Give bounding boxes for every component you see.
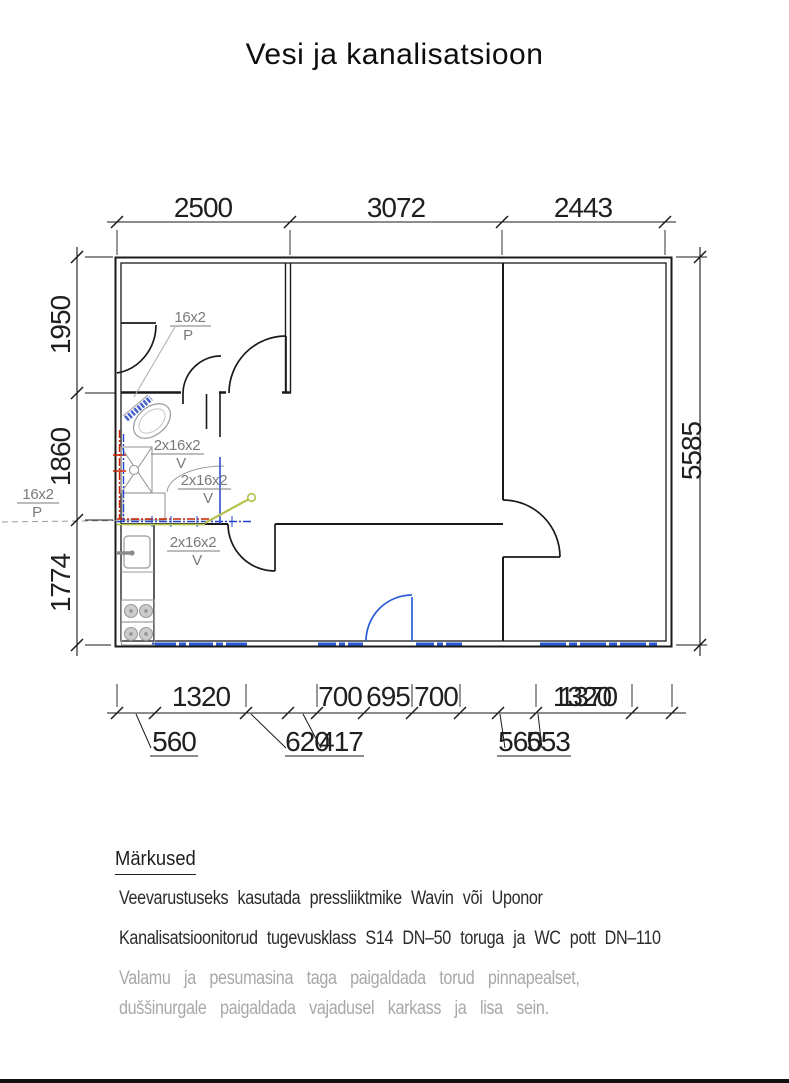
dim-bottom-r2-2: 417 xyxy=(319,726,363,757)
pipe-label-v1-sub: V xyxy=(176,455,186,472)
dim-left-0: 1950 xyxy=(45,295,76,354)
dim-top-1: 3072 xyxy=(367,192,426,223)
note-line-3: Valamu ja pesumasina taga paigaldada tor… xyxy=(119,968,580,990)
pipe-label-v3-sub: V xyxy=(192,552,202,569)
stove xyxy=(122,600,155,645)
dim-left: 1950 1860 1774 xyxy=(45,247,115,656)
kitchen-counter xyxy=(121,524,154,641)
dim-top-0: 2500 xyxy=(174,192,233,223)
pipe-label-v1-text: 2x16x2 xyxy=(154,437,201,454)
shower xyxy=(121,447,152,493)
door-top-left-room xyxy=(117,323,156,373)
pipe-label-v2-sub: V xyxy=(203,490,213,507)
door-hall-large xyxy=(229,336,286,393)
floor-plan-svg: 16x2 P 16x2 P 2x16x2 V 2x16x2 V xyxy=(0,0,789,1083)
dim-bottom-overlap-1: 1320 xyxy=(553,681,612,712)
dim-left-2: 1774 xyxy=(45,553,76,612)
pipe-label-v2-text: 2x16x2 xyxy=(181,472,228,489)
dim-bottom-r2-4: 553 xyxy=(526,726,570,757)
dim-bottom: 1320 700 695 700 1370 1320 560 620 417 5… xyxy=(107,681,686,757)
dim-left-1: 1860 xyxy=(45,427,76,486)
pipe-label-v3: 2x16x2 V xyxy=(167,534,220,569)
dim-bottom-r2-0: 560 xyxy=(152,726,196,757)
door-kitchen xyxy=(228,524,275,571)
entry-door xyxy=(366,595,412,641)
pipe-label-v3-text: 2x16x2 xyxy=(170,534,217,551)
dim-top-2: 2443 xyxy=(554,192,613,223)
note-line-2: Kanalisatsioonitorud tugevusklass S14 DN… xyxy=(119,928,661,950)
dim-bottom-r1-2: 695 xyxy=(366,681,410,712)
pipe-label-p2-text: 16x2 xyxy=(22,486,53,503)
dim-right-0: 5585 xyxy=(676,421,707,480)
pipe-label-p2-sub: P xyxy=(32,504,42,521)
pipe-label-v1: 2x16x2 V xyxy=(151,437,204,472)
note-line-4: duššinurgale paigaldada vajadusel karkas… xyxy=(119,998,549,1020)
note-line-1: Veevarustuseks kasutada pressliiktmike W… xyxy=(119,888,543,910)
dim-right: 5585 xyxy=(676,247,707,656)
notes-section: Märkused Veevarustuseks kasutada pressli… xyxy=(115,848,735,875)
door-right-room xyxy=(503,500,560,557)
notes-heading: Märkused xyxy=(115,848,196,875)
dim-bottom-r1-3: 700 xyxy=(414,681,458,712)
drawing-page: Vesi ja kanalisatsioon xyxy=(0,0,789,1083)
page-bottom-border xyxy=(0,1079,789,1083)
pipe-label-p1-sub: P xyxy=(183,327,193,344)
door-hall-small xyxy=(183,356,221,404)
dim-bottom-r1-0: 1320 xyxy=(172,681,231,712)
pipe-label-p1-text: 16x2 xyxy=(174,309,205,326)
dim-top: 2500 3072 2443 xyxy=(107,192,676,255)
dim-bottom-r1-1: 700 xyxy=(318,681,362,712)
pipe-label-v2: 2x16x2 V xyxy=(178,472,231,507)
washing-machine xyxy=(123,493,165,520)
pipe-label-p2: 16x2 P xyxy=(2,486,117,522)
pipe-label-p2-leader xyxy=(2,521,117,523)
